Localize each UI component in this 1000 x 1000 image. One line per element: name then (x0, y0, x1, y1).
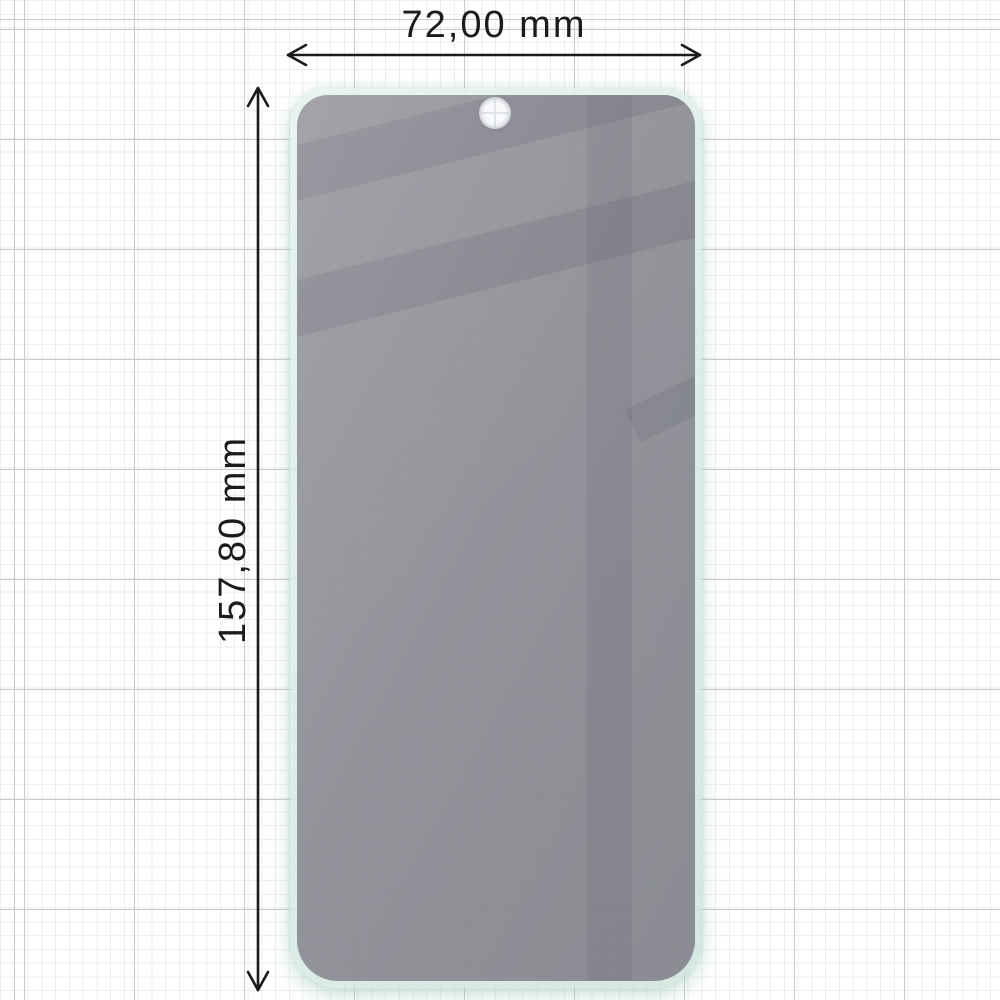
width-dimension-label: 72,00 mm (288, 6, 700, 44)
privacy-tint-layer (297, 95, 695, 981)
width-arrow-head-right (682, 45, 700, 65)
screen-protector (290, 88, 702, 988)
camera-hole-cutout (479, 97, 511, 129)
width-arrow-head-left (288, 45, 306, 65)
height-arrow-head-bottom (248, 972, 268, 990)
height-dimension-label: 157,80 mm (214, 436, 252, 644)
graph-paper-background: 72,00 mm 157,80 mm (0, 0, 1000, 1000)
width-dimension-arrow (288, 45, 700, 65)
height-arrow-head-top (248, 88, 268, 106)
light-sheen-overlay (297, 95, 695, 981)
